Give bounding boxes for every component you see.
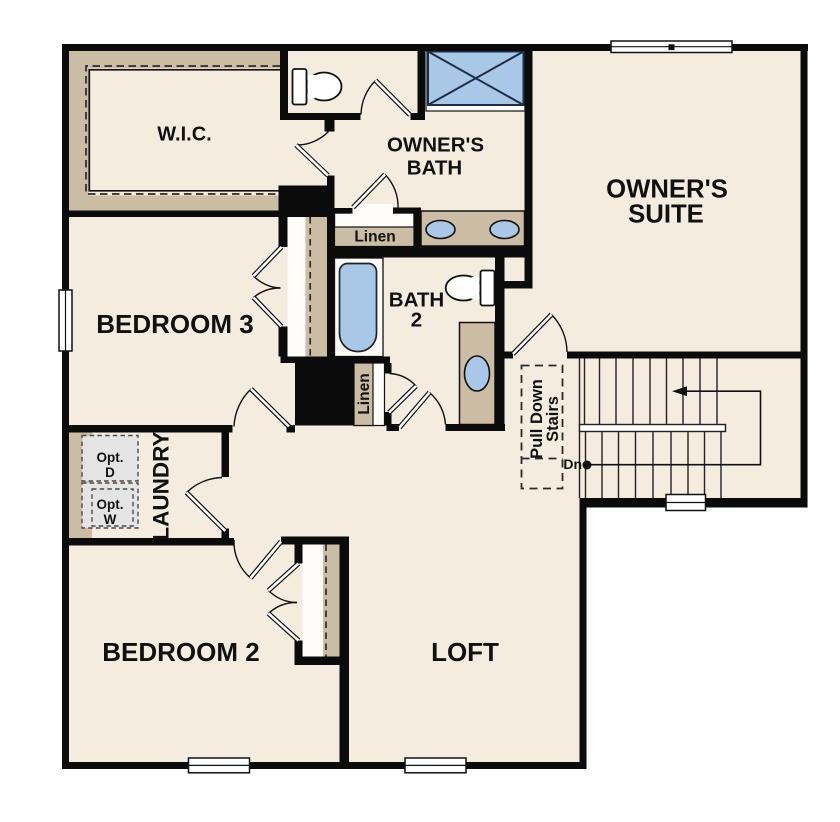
svg-text:Linen: Linen bbox=[356, 373, 373, 414]
svg-text:BEDROOM 3: BEDROOM 3 bbox=[96, 309, 253, 339]
svg-text:W: W bbox=[104, 512, 117, 527]
svg-text:OWNER'S: OWNER'S bbox=[606, 176, 728, 204]
svg-text:W.I.C.: W.I.C. bbox=[157, 124, 211, 146]
svg-text:SUITE: SUITE bbox=[628, 201, 704, 229]
svg-text:2: 2 bbox=[411, 309, 422, 332]
svg-text:Dn: Dn bbox=[563, 456, 582, 472]
svg-text:BEDROOM 2: BEDROOM 2 bbox=[102, 637, 259, 667]
svg-text:Opt.: Opt. bbox=[97, 497, 124, 512]
svg-text:Opt.: Opt. bbox=[97, 450, 124, 465]
svg-text:LAUNDRY: LAUNDRY bbox=[149, 431, 174, 540]
svg-text:Linen: Linen bbox=[354, 229, 395, 246]
svg-text:D: D bbox=[105, 465, 115, 480]
svg-text:Stairs: Stairs bbox=[544, 396, 562, 442]
svg-text:BATH: BATH bbox=[407, 157, 462, 180]
svg-text:OWNER'S: OWNER'S bbox=[387, 134, 484, 157]
svg-text:LOFT: LOFT bbox=[431, 637, 499, 667]
